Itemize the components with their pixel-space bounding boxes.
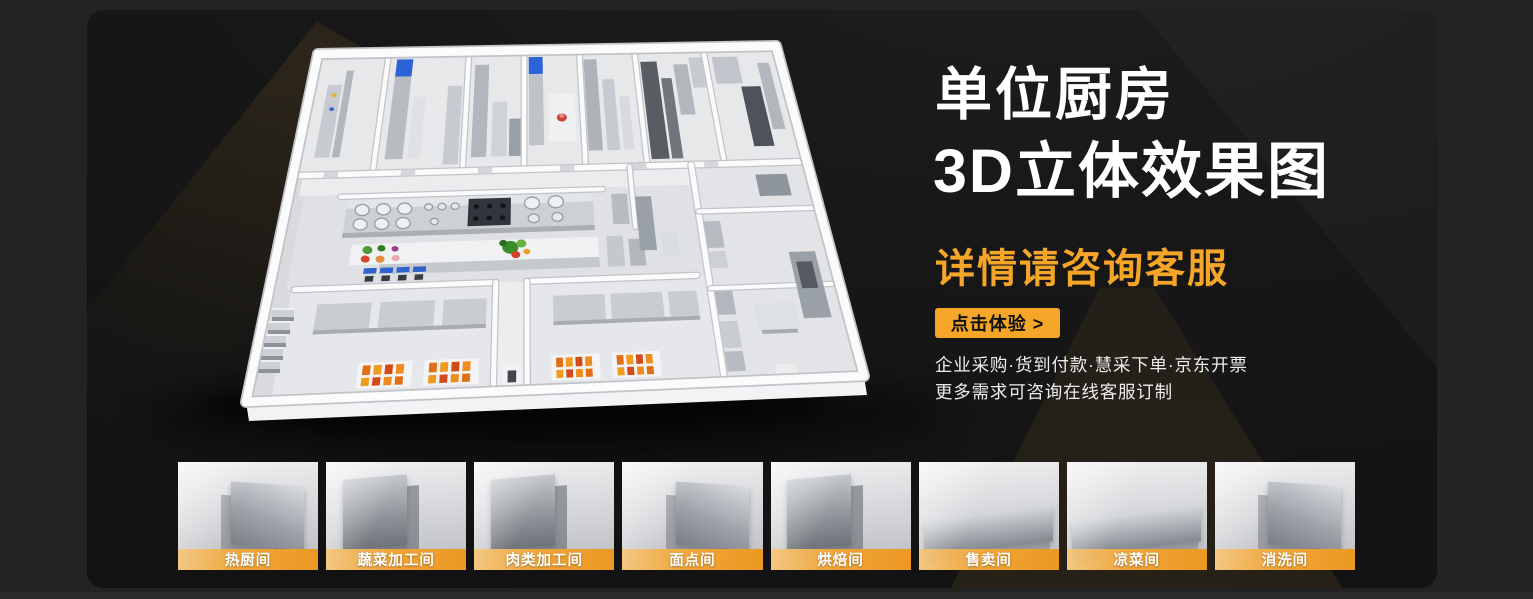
next-section-edge (0, 592, 1533, 599)
thumbnail-vegetable-processing[interactable]: 蔬菜加工间 (326, 462, 466, 570)
room-thumbnail-label: 烘焙间 (771, 549, 911, 570)
page-title: 单位厨房 (935, 64, 1175, 127)
thumbnail-hot-kitchen[interactable]: 热厨间 (178, 462, 318, 570)
thumbnail-baking-room[interactable]: 烘焙间 (771, 462, 911, 570)
room-thumbnail-label: 消洗间 (1215, 549, 1355, 570)
room-thumbnail-label: 肉类加工间 (474, 549, 614, 570)
thumbnail-cold-dish-room[interactable]: 凉菜间 (1067, 462, 1207, 570)
thumbnail-pastry-room[interactable]: 面点间 (622, 462, 762, 570)
room-thumbnail-label: 蔬菜加工间 (326, 549, 466, 570)
room-thumbnail-label: 凉菜间 (1067, 549, 1207, 570)
page-title-line2: 3D立体效果图 (933, 138, 1330, 205)
thumbnail-meat-processing[interactable]: 肉类加工间 (474, 462, 614, 570)
room-thumbnail-row: 热厨间 蔬菜加工间 肉类加工间 面点间 烘焙间 售卖间 凉菜间 消洗间 (178, 462, 1355, 570)
room-thumbnail-label: 热厨间 (178, 549, 318, 570)
room-thumbnail-label: 售卖间 (919, 549, 1059, 570)
cta-button[interactable]: 点击体验 > (935, 308, 1060, 338)
benefits-line-1: 企业采购·货到付款·慧采下单·京东开票 (935, 352, 1248, 379)
thumbnail-serving-room[interactable]: 售卖间 (919, 462, 1059, 570)
thumbnail-washing-room[interactable]: 消洗间 (1215, 462, 1355, 570)
benefits-line-2: 更多需求可咨询在线客服订制 (935, 379, 1248, 406)
consult-subtitle: 详情请咨询客服 (935, 247, 1229, 291)
room-thumbnail-label: 面点间 (622, 549, 762, 570)
benefits-text: 企业采购·货到付款·慧采下单·京东开票 更多需求可咨询在线客服订制 (935, 352, 1248, 406)
